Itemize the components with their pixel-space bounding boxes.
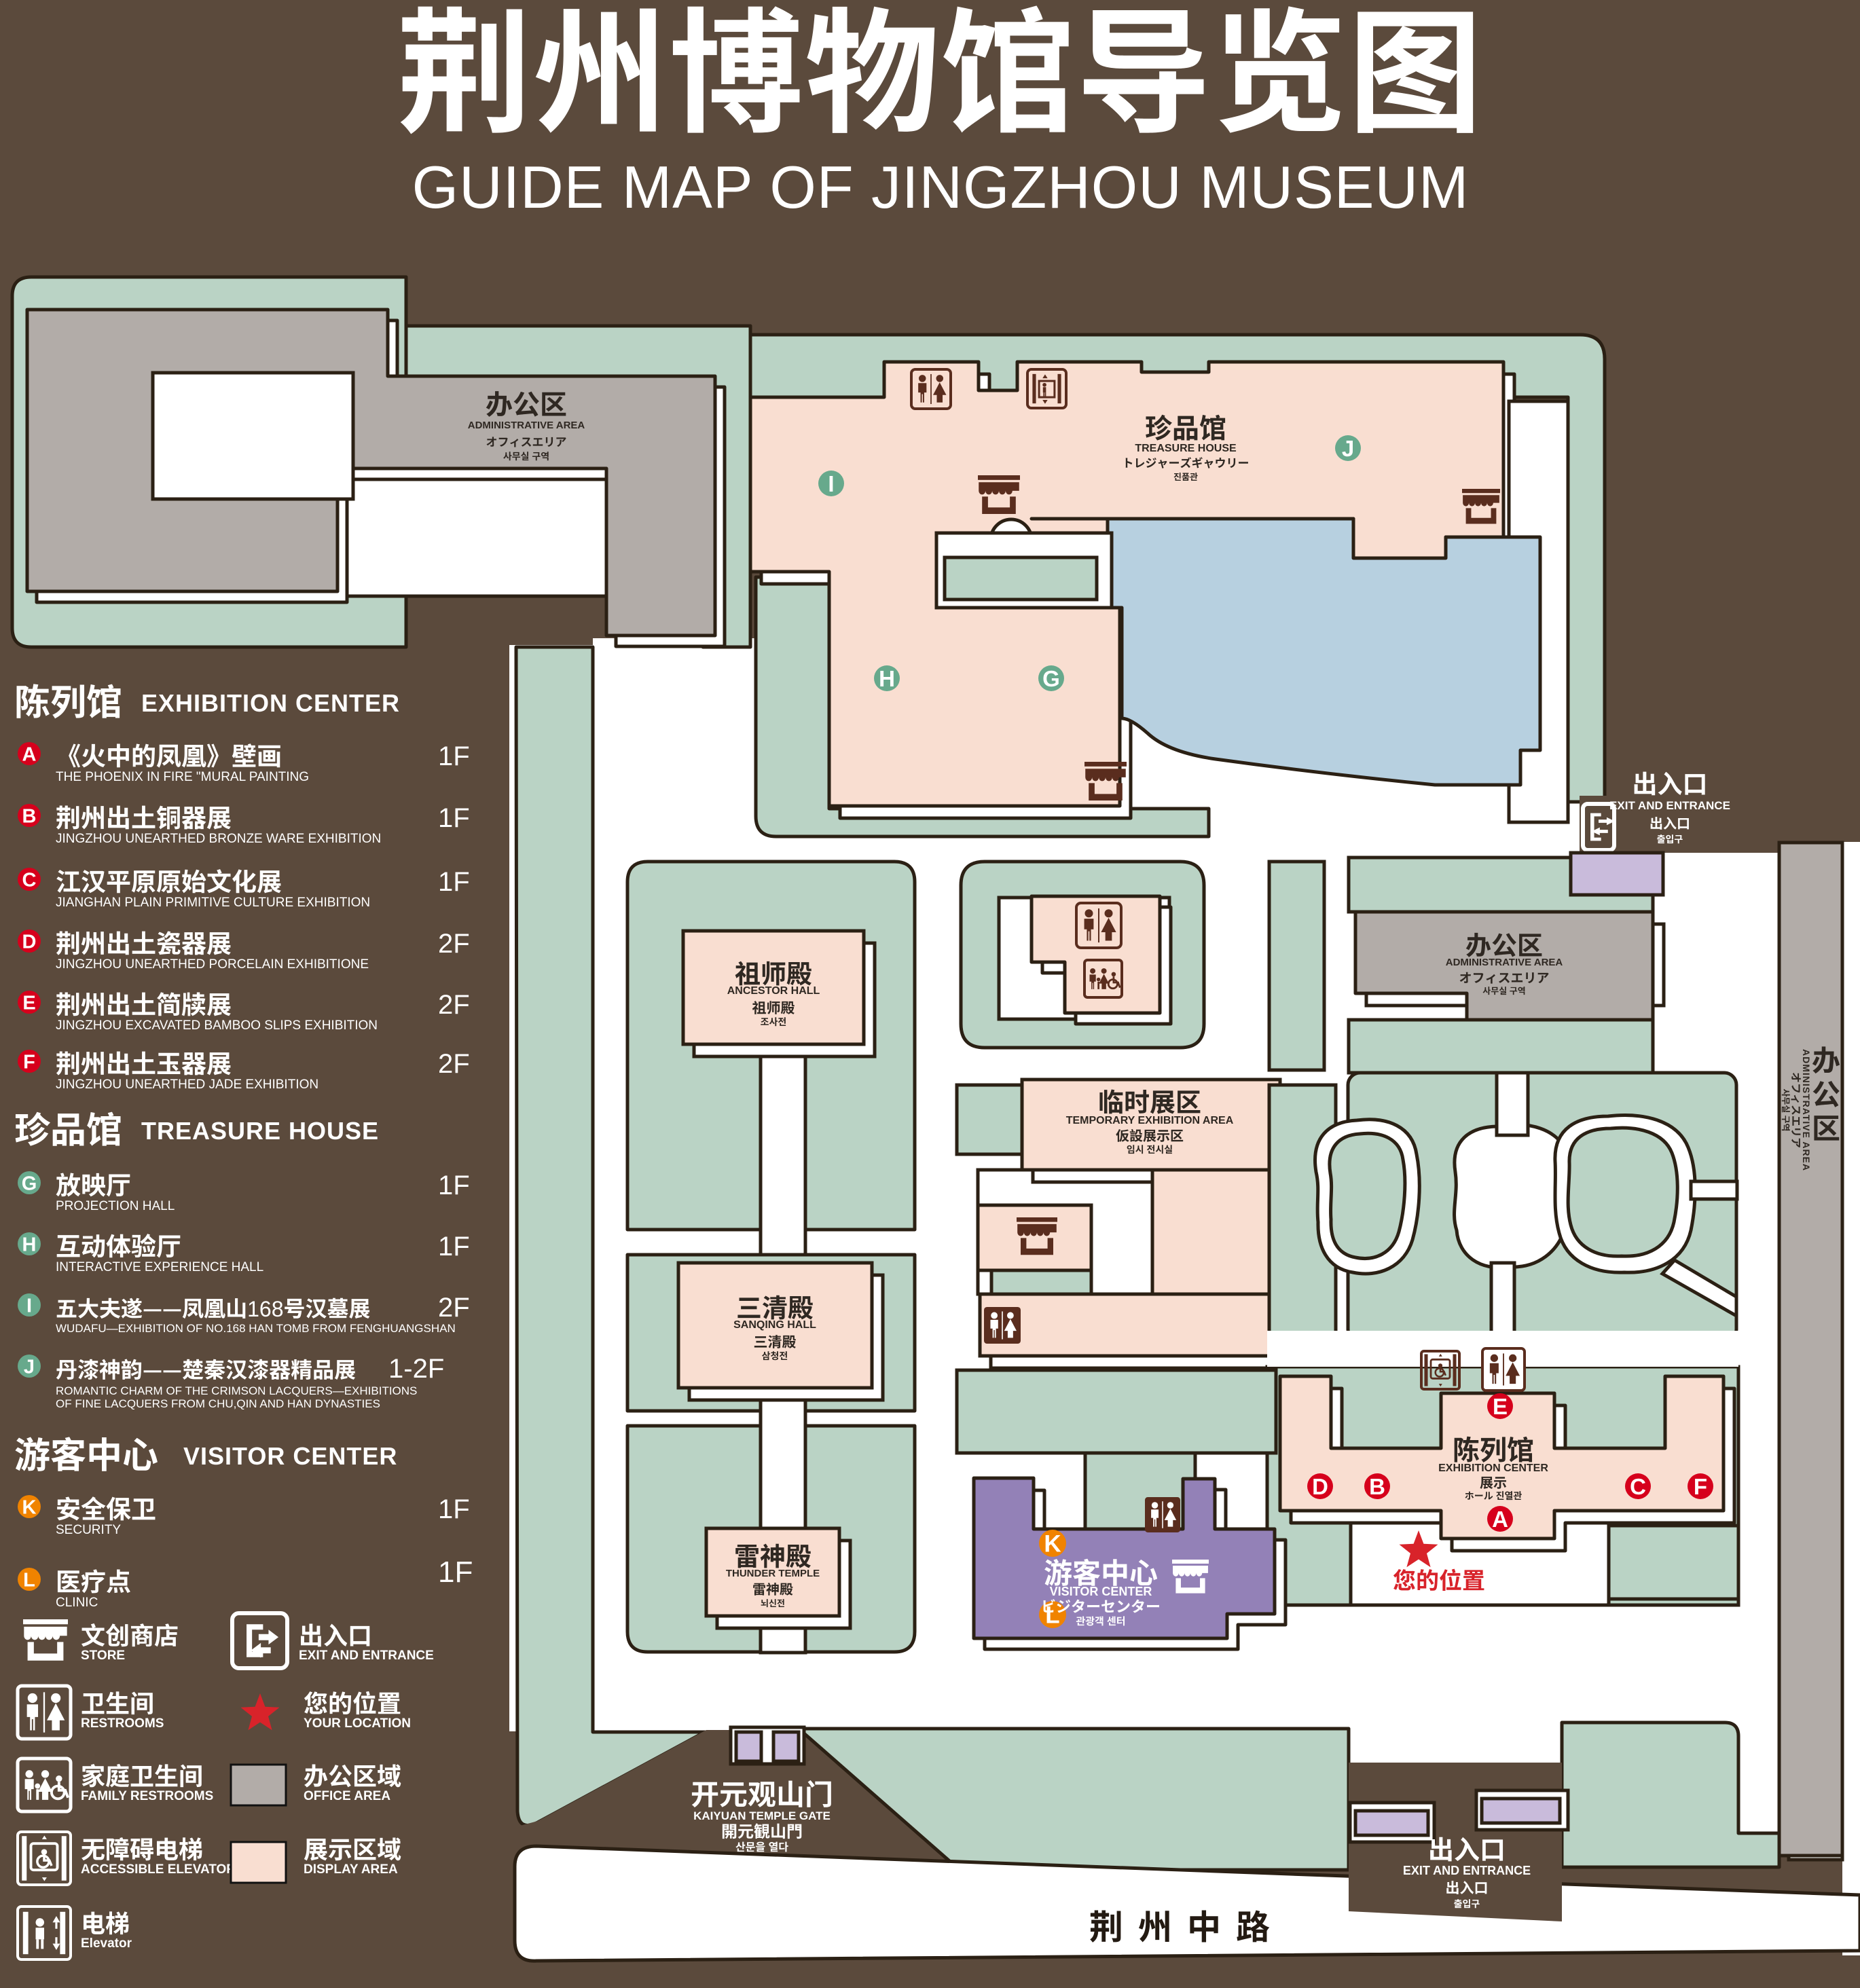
svg-text:放映厅: 放映厅 — [56, 1165, 131, 1202]
svg-text:D: D — [1312, 1474, 1328, 1499]
svg-text:电梯: 电梯 — [81, 1904, 130, 1940]
svg-text:家庭卫生间: 家庭卫生间 — [81, 1757, 203, 1792]
svg-text:五大夫遂——凤凰山168号汉墓展: 五大夫遂——凤凰山168号汉墓展 — [56, 1292, 371, 1323]
svg-text:2F: 2F — [438, 929, 470, 959]
svg-text:卫生间: 卫生间 — [81, 1685, 154, 1720]
svg-text:INTERACTIVE EXPERIENCE HALL: INTERACTIVE EXPERIENCE HALL — [56, 1260, 263, 1274]
svg-text:F: F — [1694, 1474, 1707, 1499]
svg-text:산문을 열다: 산문을 열다 — [735, 1838, 788, 1854]
svg-text:ANCESTOR HALL: ANCESTOR HALL — [727, 985, 820, 997]
svg-text:办公区域: 办公区域 — [304, 1757, 401, 1792]
svg-text:办公区: 办公区 — [486, 383, 567, 422]
svg-text:C: C — [22, 870, 37, 891]
svg-text:临时展区: 临时展区 — [1098, 1082, 1201, 1119]
svg-text:사무실 구역: 사무실 구역 — [503, 449, 549, 463]
svg-text:출입구: 출입구 — [1657, 832, 1683, 846]
svg-text:출입구: 출입구 — [1454, 1897, 1480, 1911]
svg-text:RESTROOMS: RESTROOMS — [81, 1716, 164, 1731]
svg-text:GUIDE MAP OF JINGZHOU MUSEUM: GUIDE MAP OF JINGZHOU MUSEUM — [412, 153, 1470, 221]
svg-text:トレジャーズギャウリー: トレジャーズギャウリー — [1123, 454, 1250, 471]
svg-text:F: F — [23, 1052, 35, 1073]
svg-text:JINGZHOU UNEARTHED BRONZE WARE: JINGZHOU UNEARTHED BRONZE WARE EXHIBITIO… — [56, 832, 381, 846]
svg-text:G: G — [22, 1173, 37, 1195]
svg-text:PROJECTION HALL: PROJECTION HALL — [56, 1199, 175, 1213]
svg-text:삼청전: 삼청전 — [762, 1349, 788, 1363]
svg-text:Elevator: Elevator — [81, 1936, 132, 1951]
svg-text:EXIT AND ENTRANCE: EXIT AND ENTRANCE — [1403, 1864, 1531, 1877]
svg-text:B: B — [22, 806, 37, 828]
svg-text:A: A — [22, 744, 37, 766]
svg-text:荆州博物馆导览图: 荆州博物馆导览图 — [397, 0, 1484, 160]
svg-text:您的位置: 您的位置 — [1393, 1562, 1485, 1596]
svg-text:文创商店: 文创商店 — [81, 1617, 179, 1652]
svg-text:사무실 구역: 사무실 구역 — [1482, 984, 1525, 997]
svg-text:游客中心: 游客中心 — [14, 1427, 158, 1479]
svg-text:2F: 2F — [438, 990, 470, 1020]
svg-text:STORE: STORE — [81, 1649, 125, 1663]
svg-text:オフィスエリア: オフィスエリア — [486, 432, 567, 449]
svg-text:L: L — [23, 1570, 35, 1591]
svg-text:2F: 2F — [438, 1293, 470, 1323]
svg-text:OF FINE LACQUERS FROM CHU,QIN: OF FINE LACQUERS FROM CHU,QIN AND HAN DY… — [56, 1397, 380, 1410]
svg-text:E: E — [22, 993, 35, 1014]
svg-text:D: D — [22, 932, 37, 953]
svg-text:E: E — [1493, 1394, 1508, 1419]
svg-text:J: J — [24, 1357, 35, 1378]
svg-text:G: G — [1042, 666, 1060, 691]
svg-text:J: J — [1342, 436, 1354, 461]
svg-text:THE PHOENIX IN FIRE "MURAL PAI: THE PHOENIX IN FIRE "MURAL PAINTING — [56, 770, 309, 784]
svg-text:EXIT AND ENTRANCE: EXIT AND ENTRANCE — [299, 1649, 434, 1663]
svg-text:EXHIBITION CENTER: EXHIBITION CENTER — [141, 689, 400, 717]
svg-text:《火中的凤凰》壁画: 《火中的凤凰》壁画 — [56, 736, 282, 773]
svg-text:VISITOR CENTER: VISITOR CENTER — [183, 1442, 397, 1470]
svg-text:C: C — [1630, 1474, 1646, 1499]
svg-text:珍品馆: 珍品馆 — [14, 1102, 122, 1154]
svg-text:1-2F: 1-2F — [388, 1354, 444, 1384]
svg-text:SECURITY: SECURITY — [56, 1523, 121, 1537]
svg-text:임시 전시실: 임시 전시실 — [1127, 1143, 1173, 1156]
svg-text:관광객 센터: 관광객 센터 — [1076, 1614, 1125, 1628]
svg-text:出入口: 出入口 — [1633, 764, 1708, 800]
svg-text:您的位置: 您的位置 — [304, 1685, 401, 1720]
svg-text:展示区域: 展示区域 — [304, 1830, 401, 1866]
svg-text:出入口: 出入口 — [299, 1617, 372, 1652]
svg-text:ADMINISTRATIVE AREA: ADMINISTRATIVE AREA — [1446, 957, 1563, 968]
svg-text:ROMANTIC CHARM OF THE CRIMSON: ROMANTIC CHARM OF THE CRIMSON LACQUERS—E… — [56, 1384, 417, 1397]
svg-text:无障碍电梯: 无障碍电梯 — [81, 1830, 203, 1866]
svg-text:THUNDER TEMPLE: THUNDER TEMPLE — [726, 1568, 820, 1579]
svg-text:CLINIC: CLINIC — [56, 1596, 98, 1610]
svg-text:A: A — [1492, 1507, 1508, 1532]
svg-text:조사전: 조사전 — [761, 1015, 787, 1029]
svg-text:OFFICE AREA: OFFICE AREA — [304, 1789, 390, 1803]
svg-text:WUDAFU—EXHIBITION OF NO.168 HA: WUDAFU—EXHIBITION OF NO.168 HAN TOMB FRO… — [56, 1322, 456, 1335]
svg-text:出入口: 出入口 — [1446, 1877, 1489, 1898]
svg-text:1F: 1F — [438, 1232, 470, 1262]
svg-text:荆州出土简牍展: 荆州出土简牍展 — [56, 984, 232, 1021]
svg-text:医疗点: 医疗点 — [56, 1562, 131, 1598]
svg-text:ADMINISTRATIVE AREA: ADMINISTRATIVE AREA — [468, 420, 585, 431]
svg-text:뇌신전: 뇌신전 — [761, 1596, 785, 1609]
svg-text:TREASURE HOUSE: TREASURE HOUSE — [1135, 443, 1237, 454]
svg-text:出入口: 出入口 — [1649, 813, 1690, 832]
svg-text:1F: 1F — [438, 803, 470, 833]
svg-text:安全保卫: 安全保卫 — [56, 1489, 156, 1526]
svg-text:1F: 1F — [438, 741, 470, 771]
svg-text:仮設展示区: 仮設展示区 — [1116, 1125, 1184, 1145]
svg-text:1F: 1F — [438, 1494, 470, 1524]
svg-text:荆州出土铜器展: 荆州出土铜器展 — [56, 798, 232, 834]
svg-text:H: H — [879, 666, 895, 691]
svg-text:雷神殿: 雷神殿 — [752, 1579, 793, 1598]
svg-text:荆州中路: 荆州中路 — [1089, 1900, 1285, 1949]
svg-text:JINGZHOU UNEARTHED PORCELAIN E: JINGZHOU UNEARTHED PORCELAIN EXHIBITIONE — [56, 957, 369, 972]
svg-text:2F: 2F — [438, 1049, 470, 1079]
svg-text:1F: 1F — [438, 1556, 473, 1589]
svg-text:FAMILY RESTROOMS: FAMILY RESTROOMS — [81, 1789, 213, 1803]
svg-text:사무실 구역: 사무실 구역 — [1780, 1088, 1793, 1131]
svg-text:互动体验厅: 互动体验厅 — [56, 1226, 181, 1263]
svg-text:I: I — [26, 1295, 32, 1317]
svg-text:丹漆神韵——楚秦汉漆器精品展: 丹漆神韵——楚秦汉漆器精品展 — [56, 1353, 356, 1384]
svg-text:1F: 1F — [438, 867, 470, 897]
svg-text:TREASURE HOUSE: TREASURE HOUSE — [141, 1117, 379, 1145]
svg-text:区: 区 — [1812, 1106, 1840, 1147]
svg-text:EXIT AND ENTRANCE: EXIT AND ENTRANCE — [1609, 799, 1730, 812]
svg-text:开元观山门: 开元观山门 — [691, 1772, 833, 1814]
svg-text:B: B — [1369, 1474, 1385, 1499]
svg-text:出入口: 出入口 — [1428, 1829, 1506, 1866]
svg-text:ホール 진열관: ホール 진열관 — [1465, 1489, 1522, 1503]
svg-text:荆州出土玉器展: 荆州出土玉器展 — [56, 1044, 232, 1080]
svg-text:I: I — [828, 471, 834, 496]
svg-text:珍品馆: 珍品馆 — [1145, 407, 1226, 446]
svg-text:YOUR LOCATION: YOUR LOCATION — [304, 1716, 411, 1731]
svg-text:江汉平原原始文化展: 江汉平原原始文化展 — [56, 862, 282, 898]
svg-text:荆州出土瓷器展: 荆州出土瓷器展 — [56, 923, 232, 960]
svg-text:DISPLAY AREA: DISPLAY AREA — [304, 1862, 398, 1877]
svg-text:JINGZHOU UNEARTHED JADE EXHIBI: JINGZHOU UNEARTHED JADE EXHIBITION — [56, 1078, 318, 1092]
svg-text:JIANGHAN PLAIN PRIMITIVE CULTU: JIANGHAN PLAIN PRIMITIVE CULTURE EXHIBIT… — [56, 896, 370, 910]
svg-text:1F: 1F — [438, 1171, 470, 1200]
svg-text:H: H — [22, 1234, 37, 1256]
svg-text:陈列馆: 陈列馆 — [14, 674, 122, 726]
svg-text:진품관: 진품관 — [1173, 470, 1198, 483]
svg-text:JINGZHOU EXCAVATED BAMBOO SLIP: JINGZHOU EXCAVATED BAMBOO SLIPS EXHIBITI… — [56, 1018, 378, 1033]
svg-text:K: K — [22, 1497, 37, 1519]
svg-text:SANQING HALL: SANQING HALL — [733, 1319, 816, 1331]
svg-text:ACCESSIBLE ELEVATOR: ACCESSIBLE ELEVATOR — [81, 1862, 236, 1877]
